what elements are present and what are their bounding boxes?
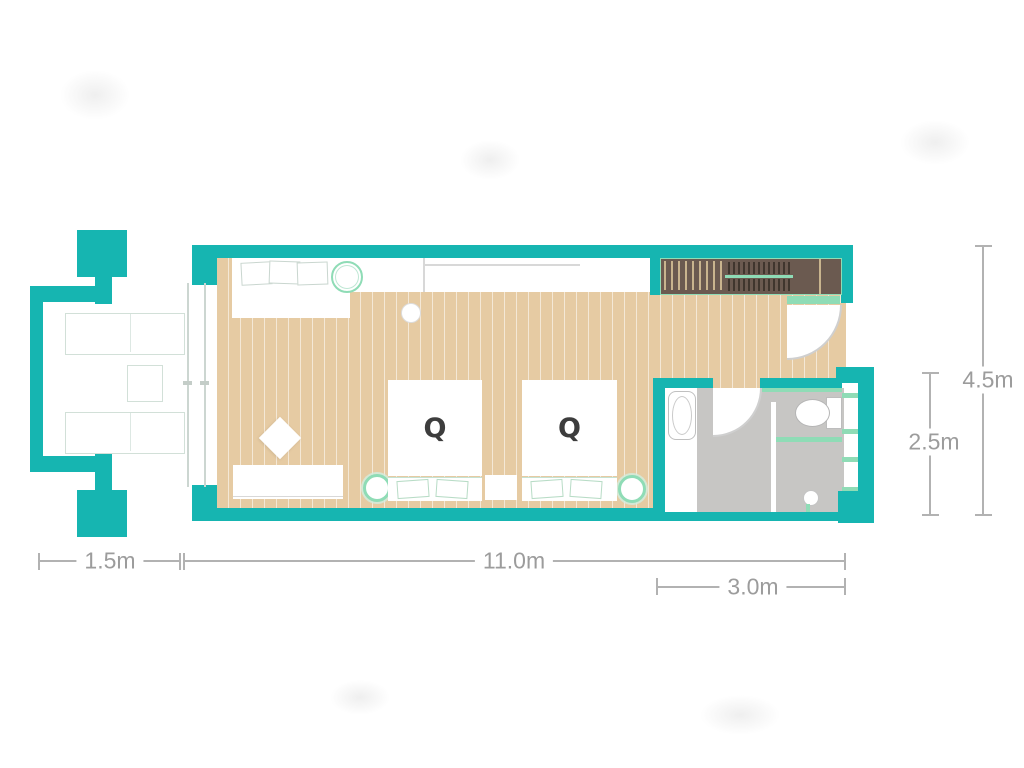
dim-tick	[38, 553, 40, 570]
dim-label-balcony-width: 1.5m	[76, 548, 143, 575]
balcony-side-table	[127, 365, 163, 402]
wardrobe-hangers-bottom	[728, 279, 790, 291]
dim-tick	[975, 514, 992, 516]
toilet-glass-partition-top	[762, 388, 842, 392]
toilet-bowl	[795, 399, 830, 427]
balcony-lounger-bottom	[65, 412, 185, 454]
dim-tick	[656, 578, 658, 595]
shower-glass-panel	[771, 402, 776, 512]
background-smudge	[330, 680, 390, 715]
bed-2-pillow	[530, 479, 563, 499]
bed-2-label: Q	[558, 413, 581, 444]
shelf-line	[842, 457, 858, 462]
desk-counter-divider	[423, 258, 425, 292]
bench-bottom	[233, 465, 343, 499]
wardrobe-hanger-rod	[725, 275, 793, 278]
balcony-lounger-top	[65, 313, 185, 355]
balcony-lounger-bottom-divider	[130, 413, 131, 451]
desk-counter-edge-line	[425, 264, 580, 266]
bathroom-shelf-unit	[844, 388, 858, 493]
nightstand	[485, 475, 517, 500]
bed-1-label: Q	[424, 413, 447, 444]
sofa-cushion	[297, 261, 329, 285]
bench-bottom-line	[233, 496, 343, 497]
bed-queen-1: Q	[388, 380, 482, 476]
dim-label-main-width: 11.0m	[475, 548, 553, 575]
entry-threshold	[787, 296, 840, 304]
bed-queen-2: Q	[522, 380, 617, 476]
dim-tick	[183, 553, 185, 570]
bathroom-wall-step-bottom	[838, 491, 874, 523]
dim-tick	[922, 514, 939, 516]
shelf-line	[842, 393, 858, 398]
dim-label-bathroom-width: 3.0m	[719, 574, 786, 601]
shower-drain-tick	[806, 504, 810, 512]
stool-right	[618, 475, 646, 503]
dim-label-total-depth: 4.5m	[954, 367, 1021, 394]
dim-tick	[844, 553, 846, 570]
bathroom-wall-top-left	[653, 378, 713, 388]
bed-2-pillow	[569, 479, 602, 499]
balcony-lounger-top-divider	[130, 314, 131, 352]
balcony-wall-left	[30, 286, 43, 472]
dim-tick	[975, 245, 992, 247]
dim-tick	[844, 578, 846, 595]
sofa-cushion	[269, 260, 301, 284]
wardrobe	[660, 258, 842, 295]
bed-1-pillow	[396, 479, 429, 499]
round-table	[331, 261, 363, 293]
bed-1-pillow	[435, 479, 468, 499]
glass-door-inner-line	[204, 283, 206, 487]
balcony-pillar-bottom	[77, 490, 127, 537]
stool-left	[363, 474, 391, 502]
background-smudge	[60, 70, 130, 120]
toilet-shower-partition	[776, 437, 842, 442]
dim-tick	[922, 372, 939, 374]
ceiling-lamp-dot	[401, 303, 421, 323]
floor-plan-canvas: Q Q	[0, 0, 1024, 768]
bathroom-wall-left	[653, 378, 665, 521]
wardrobe-louver-slats	[664, 261, 726, 290]
wall-left-stub-top	[192, 245, 217, 285]
bathroom-wall-top-right	[760, 378, 842, 388]
wardrobe-section-divider	[819, 259, 821, 294]
glass-door-handle-tick	[183, 381, 192, 385]
background-smudge	[460, 140, 520, 180]
balcony-pillar-top	[77, 230, 127, 277]
wardrobe-hangers-top	[728, 262, 790, 274]
sink-basin-oval	[672, 396, 692, 435]
wall-top	[192, 245, 853, 258]
background-smudge	[700, 695, 780, 735]
bathroom-wall-right	[858, 367, 874, 507]
glass-door-handle-tick	[200, 381, 209, 385]
background-smudge	[900, 120, 970, 165]
glass-door-outer-line	[187, 283, 189, 487]
dim-tick	[179, 553, 181, 570]
shelf-line	[842, 429, 858, 434]
dim-label-bathroom-depth: 2.5m	[900, 429, 967, 456]
